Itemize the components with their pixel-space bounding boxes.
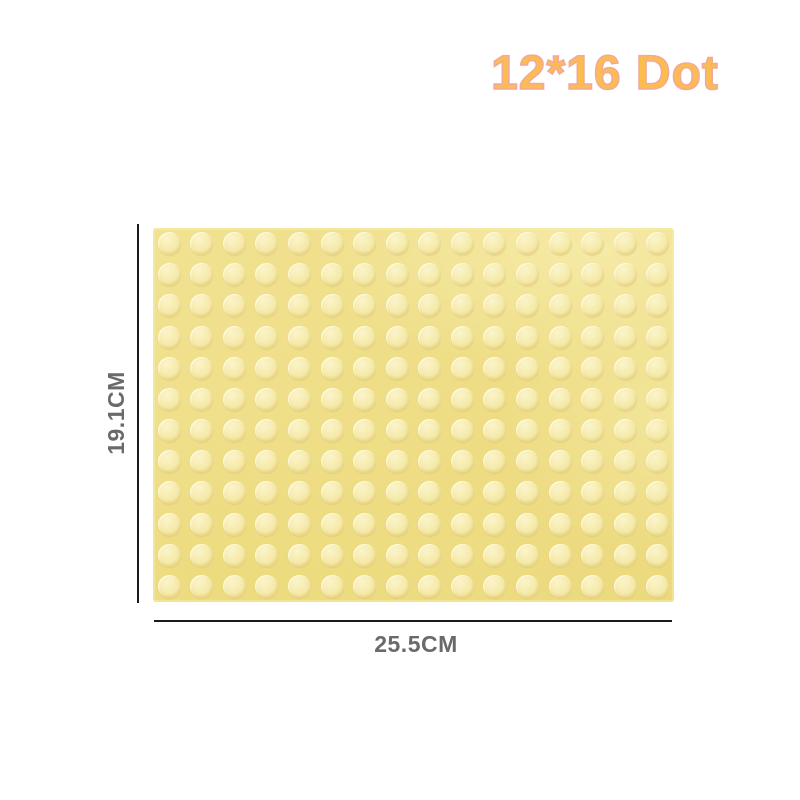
stud — [386, 232, 409, 255]
stud-cell — [446, 353, 479, 384]
stud-cell — [414, 259, 447, 290]
stud-cell — [218, 259, 251, 290]
stud — [451, 450, 474, 473]
stud-cell — [316, 353, 349, 384]
stud-cell — [576, 259, 609, 290]
stud-cell — [576, 384, 609, 415]
stud — [483, 481, 506, 504]
stud-cell — [544, 290, 577, 321]
stud-cell — [283, 228, 316, 259]
stud — [353, 357, 376, 380]
stud-cell — [609, 228, 642, 259]
stud — [418, 575, 441, 598]
stud — [255, 326, 278, 349]
stud — [418, 450, 441, 473]
stud-cell — [153, 571, 186, 602]
stud — [353, 232, 376, 255]
stud-cell — [218, 290, 251, 321]
stud-cell — [544, 353, 577, 384]
stud — [614, 357, 637, 380]
stud-cell — [641, 571, 674, 602]
stud-cell — [283, 508, 316, 539]
stud — [255, 513, 278, 536]
stud — [223, 481, 246, 504]
stud — [418, 357, 441, 380]
height-dimension-line — [137, 224, 139, 603]
stud — [646, 232, 669, 255]
stud — [516, 357, 539, 380]
stud — [353, 326, 376, 349]
stud — [549, 357, 572, 380]
stud — [646, 513, 669, 536]
stud — [288, 575, 311, 598]
stud — [549, 326, 572, 349]
stud-cell — [641, 446, 674, 477]
stud-cell — [381, 259, 414, 290]
stud-cell — [641, 321, 674, 352]
stud — [223, 263, 246, 286]
stud — [418, 388, 441, 411]
stud-cell — [609, 321, 642, 352]
stud — [614, 419, 637, 442]
stud — [386, 326, 409, 349]
stud — [321, 419, 344, 442]
stud-cell — [641, 415, 674, 446]
stud — [223, 450, 246, 473]
stud — [158, 357, 181, 380]
stud — [223, 544, 246, 567]
stud-cell — [381, 321, 414, 352]
stud-cell — [511, 384, 544, 415]
stud-cell — [316, 259, 349, 290]
stud-cell — [479, 290, 512, 321]
stud-cell — [609, 415, 642, 446]
stud — [223, 294, 246, 317]
stud-cell — [348, 353, 381, 384]
stud — [158, 450, 181, 473]
stud-cell — [446, 290, 479, 321]
stud-cell — [414, 571, 447, 602]
stud — [549, 294, 572, 317]
stud — [353, 419, 376, 442]
stud — [483, 232, 506, 255]
stud — [483, 388, 506, 411]
stud — [386, 450, 409, 473]
stud — [646, 326, 669, 349]
stud — [321, 326, 344, 349]
stud — [255, 388, 278, 411]
stud-cell — [414, 508, 447, 539]
stud — [646, 263, 669, 286]
stud — [483, 450, 506, 473]
stud-cell — [316, 290, 349, 321]
stud-cell — [381, 477, 414, 508]
stud-cell — [218, 384, 251, 415]
stud — [321, 294, 344, 317]
stud-cell — [609, 446, 642, 477]
stud — [614, 294, 637, 317]
stud — [646, 450, 669, 473]
stud — [418, 513, 441, 536]
stud — [646, 575, 669, 598]
stud-cell — [576, 446, 609, 477]
stud-cell — [153, 353, 186, 384]
stud-cell — [576, 321, 609, 352]
stud — [190, 388, 213, 411]
stud-cell — [511, 540, 544, 571]
stud-cell — [283, 540, 316, 571]
stud — [581, 481, 604, 504]
stud — [483, 419, 506, 442]
stud — [451, 388, 474, 411]
stud-cell — [348, 477, 381, 508]
stud-cell — [316, 415, 349, 446]
stud-cell — [576, 540, 609, 571]
stud — [288, 450, 311, 473]
stud — [516, 513, 539, 536]
stud-cell — [641, 508, 674, 539]
stud-cell — [381, 540, 414, 571]
stud — [549, 544, 572, 567]
stud — [516, 419, 539, 442]
stud-cell — [283, 321, 316, 352]
stud-cell — [218, 540, 251, 571]
stud-cell — [186, 508, 219, 539]
stud — [581, 263, 604, 286]
stud-cell — [381, 415, 414, 446]
stud — [614, 450, 637, 473]
stud — [158, 263, 181, 286]
stud-cell — [251, 259, 284, 290]
stud-cell — [153, 540, 186, 571]
stud — [549, 513, 572, 536]
stud — [288, 294, 311, 317]
stud-cell — [381, 571, 414, 602]
stud — [353, 388, 376, 411]
stud-cell — [186, 321, 219, 352]
stud-cell — [609, 384, 642, 415]
stud — [255, 544, 278, 567]
stud — [581, 575, 604, 598]
stud-cell — [153, 477, 186, 508]
stud — [255, 419, 278, 442]
stud-cell — [316, 508, 349, 539]
stud-cell — [544, 571, 577, 602]
stud — [549, 263, 572, 286]
stud-cell — [218, 571, 251, 602]
stud — [190, 575, 213, 598]
stud-cell — [446, 415, 479, 446]
stud-cell — [414, 290, 447, 321]
stud-cell — [283, 353, 316, 384]
stud-cell — [381, 384, 414, 415]
stud — [418, 419, 441, 442]
stud — [353, 481, 376, 504]
stud — [614, 388, 637, 411]
stud-cell — [251, 415, 284, 446]
stud-cell — [218, 321, 251, 352]
stud — [353, 513, 376, 536]
stud-cell — [153, 321, 186, 352]
stud-cell — [186, 571, 219, 602]
stud — [614, 232, 637, 255]
stud-cell — [186, 384, 219, 415]
stud — [223, 419, 246, 442]
stud — [483, 263, 506, 286]
stud — [353, 294, 376, 317]
stud-cell — [446, 571, 479, 602]
stud-cell — [251, 321, 284, 352]
stud-cell — [414, 415, 447, 446]
stud-cell — [381, 353, 414, 384]
stud — [483, 326, 506, 349]
stud-cell — [186, 290, 219, 321]
stud-cell — [446, 446, 479, 477]
stud — [581, 294, 604, 317]
stud — [516, 294, 539, 317]
stud-cell — [479, 259, 512, 290]
stud — [288, 481, 311, 504]
stud-cell — [348, 259, 381, 290]
stud-cell — [218, 446, 251, 477]
stud-cell — [218, 228, 251, 259]
stud-cell — [251, 228, 284, 259]
stud-cell — [316, 571, 349, 602]
stud — [549, 450, 572, 473]
stud-cell — [316, 477, 349, 508]
stud-cell — [576, 477, 609, 508]
stud-cell — [414, 321, 447, 352]
stud — [321, 513, 344, 536]
stud — [386, 294, 409, 317]
stud — [321, 357, 344, 380]
stud-cell — [544, 540, 577, 571]
stud — [158, 544, 181, 567]
product-image: 12*16 Dot 19.1CM 25.5CM — [0, 0, 800, 800]
stud — [516, 544, 539, 567]
stud — [190, 232, 213, 255]
stud-cell — [641, 290, 674, 321]
stud-cell — [479, 415, 512, 446]
stud-cell — [381, 228, 414, 259]
stud-cell — [348, 446, 381, 477]
stud-cell — [479, 571, 512, 602]
stud — [353, 575, 376, 598]
stud-cell — [283, 477, 316, 508]
stud — [581, 450, 604, 473]
stud-cell — [479, 384, 512, 415]
stud — [418, 326, 441, 349]
stud-cell — [511, 508, 544, 539]
stud — [288, 232, 311, 255]
stud-cell — [479, 228, 512, 259]
stud-cell — [609, 571, 642, 602]
stud — [516, 481, 539, 504]
stud-cell — [576, 290, 609, 321]
stud-cell — [283, 571, 316, 602]
stud — [483, 357, 506, 380]
stud — [190, 544, 213, 567]
stud-cell — [283, 446, 316, 477]
stud — [223, 388, 246, 411]
stud — [321, 481, 344, 504]
stud-cell — [316, 540, 349, 571]
stud — [516, 388, 539, 411]
stud — [386, 513, 409, 536]
stud — [288, 357, 311, 380]
stud — [386, 357, 409, 380]
stud — [386, 419, 409, 442]
stud — [255, 232, 278, 255]
stud — [158, 294, 181, 317]
stud — [223, 513, 246, 536]
stud-cell — [641, 353, 674, 384]
stud-cell — [153, 415, 186, 446]
stud — [614, 326, 637, 349]
stud-cell — [251, 571, 284, 602]
stud-cell — [153, 259, 186, 290]
stud-cell — [348, 571, 381, 602]
stud-cell — [446, 384, 479, 415]
stud — [190, 450, 213, 473]
stud — [386, 575, 409, 598]
stud-cell — [414, 384, 447, 415]
stud-cell — [609, 290, 642, 321]
stud-cell — [511, 571, 544, 602]
stud-cell — [641, 477, 674, 508]
stud — [549, 419, 572, 442]
stud — [321, 544, 344, 567]
stud-cell — [283, 415, 316, 446]
stud-cell — [251, 477, 284, 508]
stud-cell — [348, 540, 381, 571]
stud-cell — [446, 540, 479, 571]
stud-cell — [283, 384, 316, 415]
stud-cell — [511, 290, 544, 321]
stud-cell — [316, 228, 349, 259]
stud-cell — [186, 540, 219, 571]
stud — [223, 357, 246, 380]
height-dimension-label: 19.1CM — [103, 363, 129, 463]
stud-cell — [511, 228, 544, 259]
stud-cell — [186, 415, 219, 446]
stud-cell — [348, 228, 381, 259]
stud-cell — [479, 477, 512, 508]
stud — [646, 419, 669, 442]
stud-cell — [251, 508, 284, 539]
stud-cell — [316, 446, 349, 477]
stud — [483, 513, 506, 536]
stud-cell — [414, 540, 447, 571]
stud — [646, 294, 669, 317]
stud — [451, 419, 474, 442]
stud — [353, 544, 376, 567]
stud — [288, 263, 311, 286]
stud — [516, 575, 539, 598]
stud-cell — [446, 321, 479, 352]
stud-cell — [609, 259, 642, 290]
stud — [255, 575, 278, 598]
stud — [190, 357, 213, 380]
stud — [581, 326, 604, 349]
stud-cell — [218, 415, 251, 446]
stud — [483, 294, 506, 317]
stud — [549, 232, 572, 255]
stud — [614, 575, 637, 598]
stud — [646, 388, 669, 411]
stud — [321, 388, 344, 411]
stud — [418, 232, 441, 255]
stud — [451, 357, 474, 380]
stud — [190, 481, 213, 504]
stud-cell — [153, 228, 186, 259]
stud — [386, 263, 409, 286]
stud — [288, 388, 311, 411]
stud — [451, 263, 474, 286]
stud-cell — [576, 353, 609, 384]
stud — [321, 575, 344, 598]
stud-cell — [218, 508, 251, 539]
stud — [451, 544, 474, 567]
stud-cell — [544, 259, 577, 290]
stud-cell — [641, 384, 674, 415]
stud — [255, 357, 278, 380]
stud-cell — [446, 508, 479, 539]
stud-cell — [186, 228, 219, 259]
stud-cell — [414, 228, 447, 259]
stud — [321, 232, 344, 255]
stud-cell — [251, 290, 284, 321]
stud-cell — [414, 477, 447, 508]
stud-cell — [251, 446, 284, 477]
stud-cell — [153, 446, 186, 477]
stud — [646, 357, 669, 380]
width-dimension-label: 25.5CM — [356, 631, 476, 657]
stud-cell — [544, 321, 577, 352]
stud-cell — [316, 321, 349, 352]
stud — [223, 575, 246, 598]
stud — [451, 232, 474, 255]
stud-cell — [251, 384, 284, 415]
stud-cell — [251, 540, 284, 571]
stud — [158, 232, 181, 255]
stud — [516, 232, 539, 255]
stud — [581, 388, 604, 411]
stud-cell — [641, 259, 674, 290]
stud-cell — [414, 446, 447, 477]
stud — [288, 513, 311, 536]
stud — [451, 326, 474, 349]
stud — [614, 481, 637, 504]
stud — [451, 294, 474, 317]
stud-cell — [381, 446, 414, 477]
stud-cell — [348, 321, 381, 352]
stud — [451, 513, 474, 536]
stud — [386, 388, 409, 411]
stud — [255, 450, 278, 473]
stud — [158, 326, 181, 349]
stud — [288, 419, 311, 442]
stud-cell — [511, 321, 544, 352]
stud-cell — [609, 477, 642, 508]
stud-cell — [316, 384, 349, 415]
stud-cell — [576, 228, 609, 259]
stud — [223, 326, 246, 349]
stud — [614, 544, 637, 567]
stud — [321, 263, 344, 286]
stud-cell — [544, 508, 577, 539]
product-title: 12*16 Dot — [445, 50, 765, 98]
